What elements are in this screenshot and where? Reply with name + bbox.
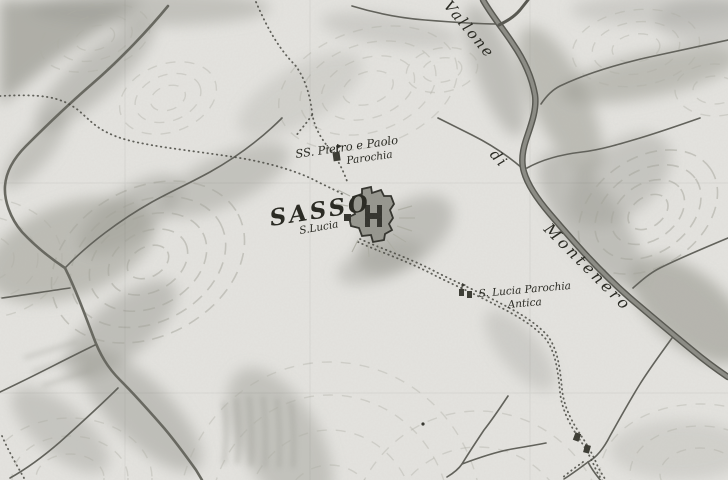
map-canvas: Vallone di Montenero SS. Pietro e Paolo … [0, 0, 728, 480]
paper-texture [0, 0, 728, 480]
historical-map: Vallone di Montenero SS. Pietro e Paolo … [0, 0, 728, 480]
